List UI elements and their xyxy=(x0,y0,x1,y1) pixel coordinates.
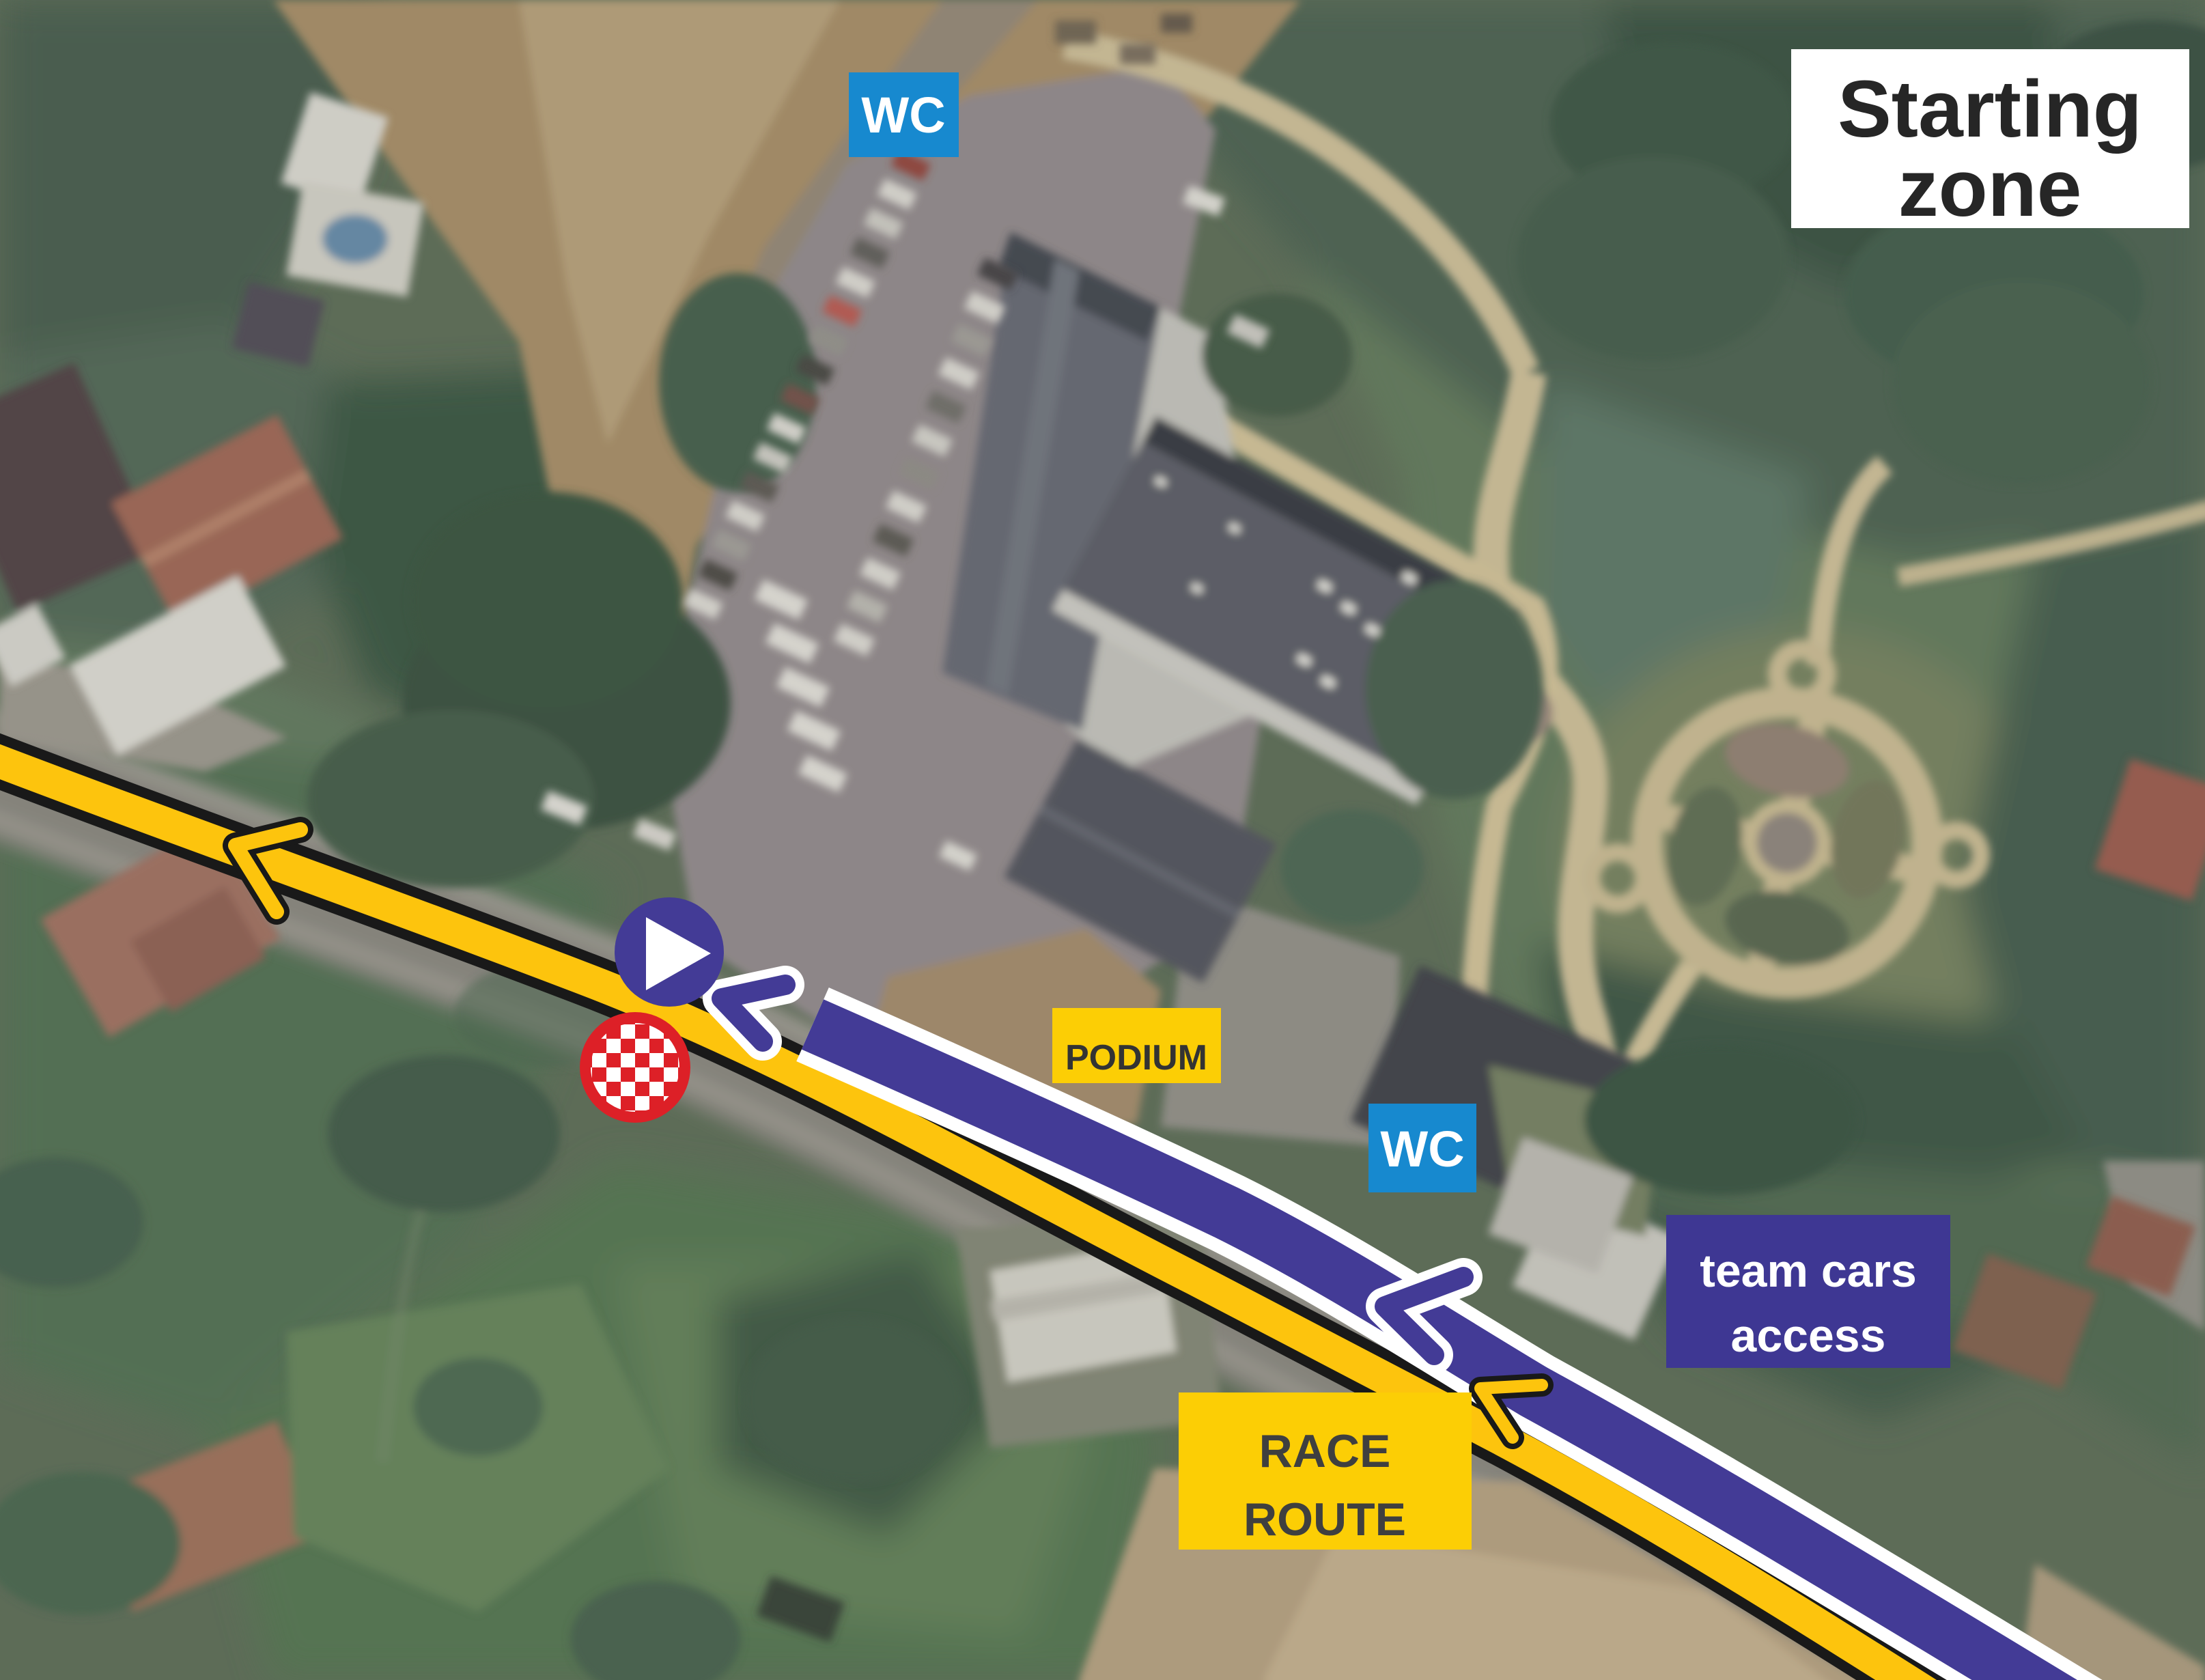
svg-text:ROUTE: ROUTE xyxy=(1244,1494,1406,1545)
svg-text:zone: zone xyxy=(1898,143,2082,234)
svg-text:Starting: Starting xyxy=(1838,64,2142,154)
svg-text:RACE: RACE xyxy=(1259,1425,1391,1477)
svg-text:access: access xyxy=(1731,1310,1886,1362)
svg-text:team cars: team cars xyxy=(1700,1245,1917,1297)
svg-text:PODIUM: PODIUM xyxy=(1065,1038,1207,1078)
svg-text:WC: WC xyxy=(1380,1121,1464,1177)
svg-text:WC: WC xyxy=(861,87,945,143)
